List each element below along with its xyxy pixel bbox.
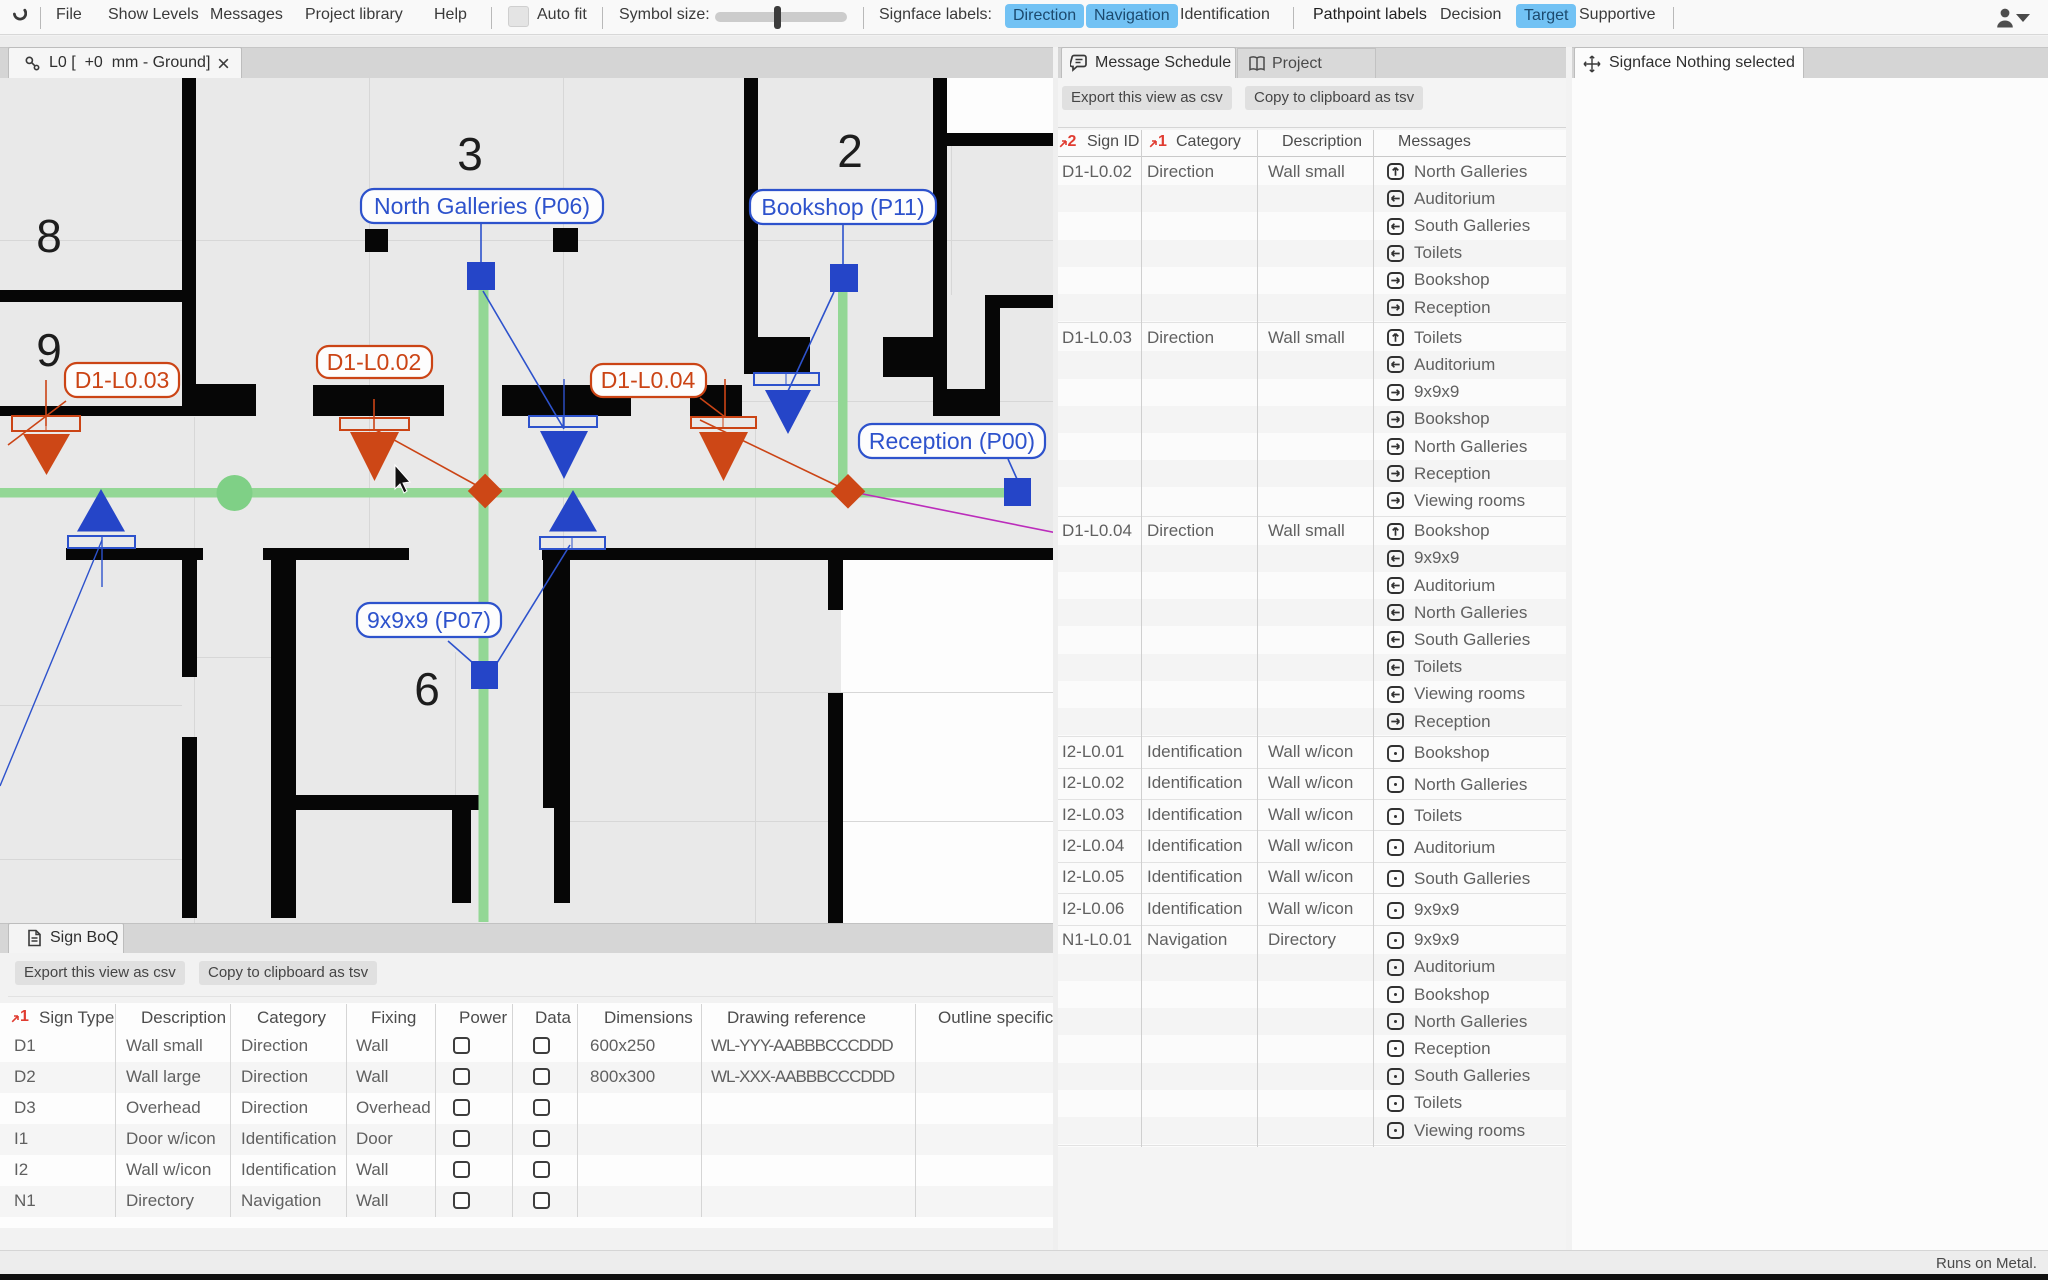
svg-text:Bookshop (P11): Bookshop (P11) [761, 194, 924, 220]
svg-text:9x9x9 (P07): 9x9x9 (P07) [367, 607, 491, 633]
svg-text:9: 9 [36, 324, 62, 376]
svg-text:2: 2 [837, 125, 863, 177]
svg-text:8: 8 [36, 210, 62, 262]
svg-text:Reception (P00): Reception (P00) [869, 428, 1035, 454]
svg-text:6: 6 [414, 663, 440, 715]
svg-text:3: 3 [457, 128, 483, 180]
svg-text:North Galleries (P06): North Galleries (P06) [374, 193, 590, 219]
svg-text:D1-L0.04: D1-L0.04 [601, 367, 696, 393]
svg-text:D1-L0.03: D1-L0.03 [75, 367, 170, 393]
svg-text:D1-L0.02: D1-L0.02 [327, 349, 422, 375]
